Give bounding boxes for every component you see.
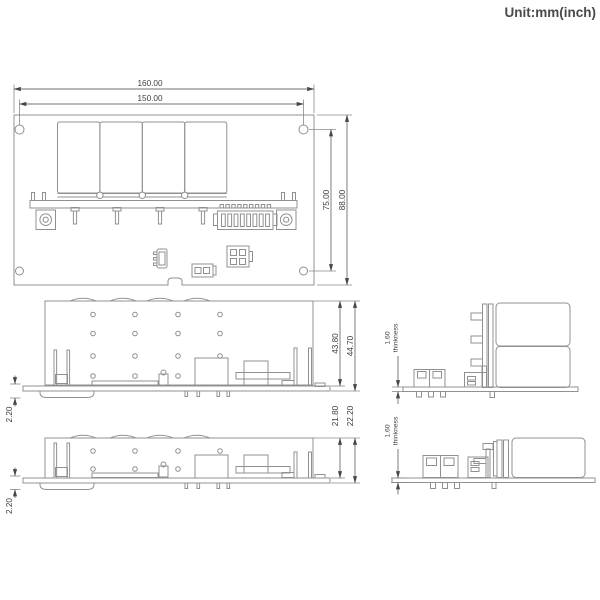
dim-height-total-low: 22.20 xyxy=(346,405,355,426)
pcb-end-low xyxy=(392,478,595,489)
dim-pcb-thickness-low: 1.60 xyxy=(385,424,392,437)
dim-pcb-thickness-covered: 1.60 xyxy=(385,331,392,344)
pcb-side xyxy=(23,386,330,398)
screw-mount-left xyxy=(36,210,56,230)
dim-hole-pitch-x: 150.00 xyxy=(137,94,162,103)
end-view-low: 1.60 thinkness xyxy=(385,416,596,494)
terminal-block-end-low xyxy=(423,456,458,478)
side-view-low: 2.20 21.80 22.20 xyxy=(5,405,360,514)
dim-height-total-covered: 44.70 xyxy=(346,335,355,356)
dim-height-components-covered: 43.80 xyxy=(331,333,340,354)
connector-end-low xyxy=(468,449,490,478)
aux-connectors xyxy=(154,246,253,277)
top-view-dimensions: 160.00 150.00 75.00 88.00 xyxy=(14,79,352,285)
capacitors-end xyxy=(471,303,570,388)
label-thickness-covered: thinkness xyxy=(393,323,400,352)
dim-hole-pitch-y: 75.00 xyxy=(322,189,331,210)
pcb-end xyxy=(403,387,578,398)
two-pin-connector xyxy=(192,264,216,277)
dim-standoff-covered: 2.20 xyxy=(5,406,14,422)
solder-pins xyxy=(71,208,207,225)
label-thickness-low: thinkness xyxy=(393,416,400,445)
terminal-block-end xyxy=(414,370,445,388)
four-pin-connector xyxy=(227,246,253,267)
vent-holes xyxy=(91,312,223,378)
connector-end xyxy=(465,366,487,387)
dim-standoff-low: 2.20 xyxy=(5,498,14,514)
unit-label: Unit:mm(inch) xyxy=(505,5,597,20)
dim-overall-depth: 88.00 xyxy=(338,189,347,210)
dim-height-components-low: 21.80 xyxy=(331,405,340,426)
dim-overall-width: 160.00 xyxy=(137,79,162,88)
end-low-dimensions: 1.60 thinkness xyxy=(385,416,405,494)
signal-connector xyxy=(154,249,168,268)
capacitor-horizontal xyxy=(474,438,585,478)
internal-components-low xyxy=(54,443,325,478)
mechanical-drawing-page: Unit:mm(inch) xyxy=(0,0,600,600)
mechanical-drawing: Unit:mm(inch) xyxy=(0,0,600,600)
top-view: 160.00 150.00 75.00 88.00 xyxy=(14,79,352,285)
vent-holes-low xyxy=(91,449,223,472)
pcb-side-low xyxy=(23,478,330,490)
end-view-covered: 1.60 thinkness xyxy=(385,303,579,404)
terminal-connector xyxy=(214,205,278,230)
end-covered-dimensions: 1.60 thinkness xyxy=(385,323,405,404)
side-low-dimensions: 2.20 21.80 22.20 xyxy=(5,405,360,514)
screw-mount-right xyxy=(277,210,297,230)
side-view-covered: 2.20 43.80 44.70 xyxy=(5,298,360,422)
cover xyxy=(45,298,313,385)
capacitor-bank xyxy=(58,122,227,199)
side-covered-dimensions: 2.20 43.80 44.70 xyxy=(5,301,360,422)
